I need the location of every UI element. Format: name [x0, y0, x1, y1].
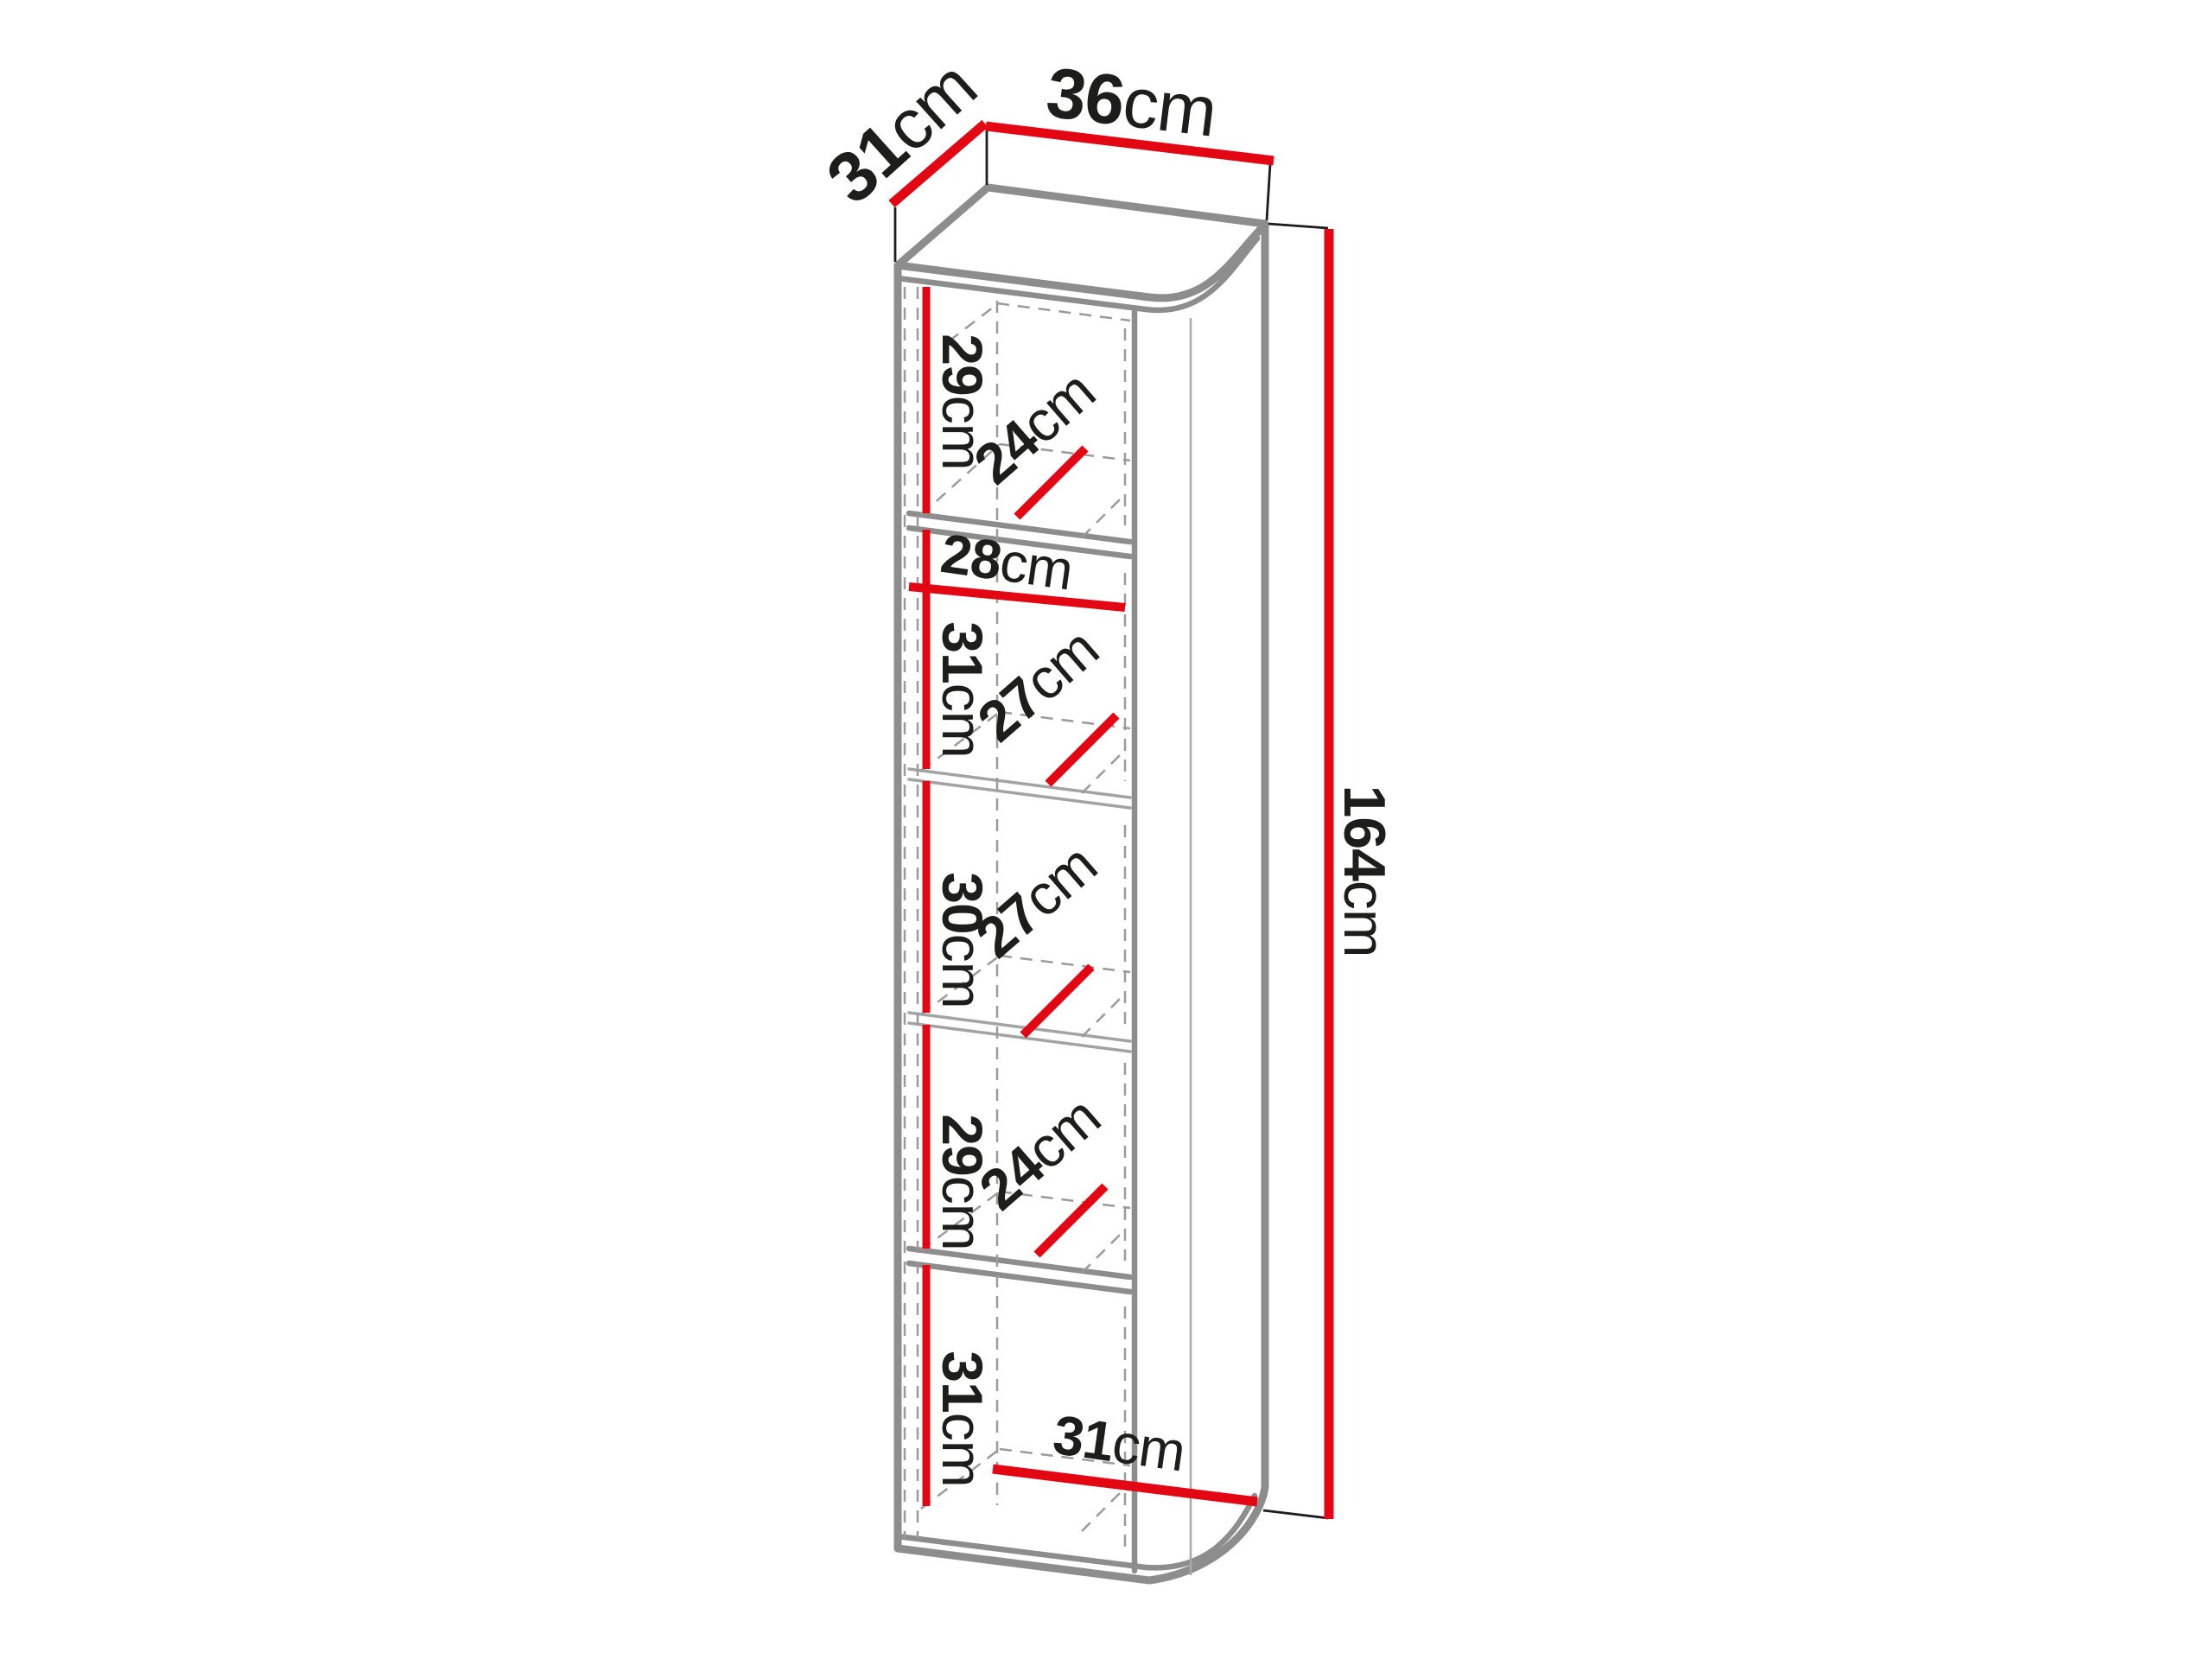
ext-height-top: [1268, 224, 1328, 228]
diagram-page: 31cm 36cm 164cm 29cm 31cm 30cm 29cm 31cm…: [0, 0, 2212, 1659]
ext-width-right: [1267, 164, 1270, 220]
label-overall-height: 164cm: [1332, 785, 1397, 957]
label-compartment-5-height: 31cm: [931, 1351, 995, 1486]
ext-height-bottom: [1263, 1510, 1328, 1518]
cabinet-dimension-diagram: 31cm 36cm 164cm 29cm 31cm 30cm 29cm 31cm…: [0, 0, 2212, 1659]
